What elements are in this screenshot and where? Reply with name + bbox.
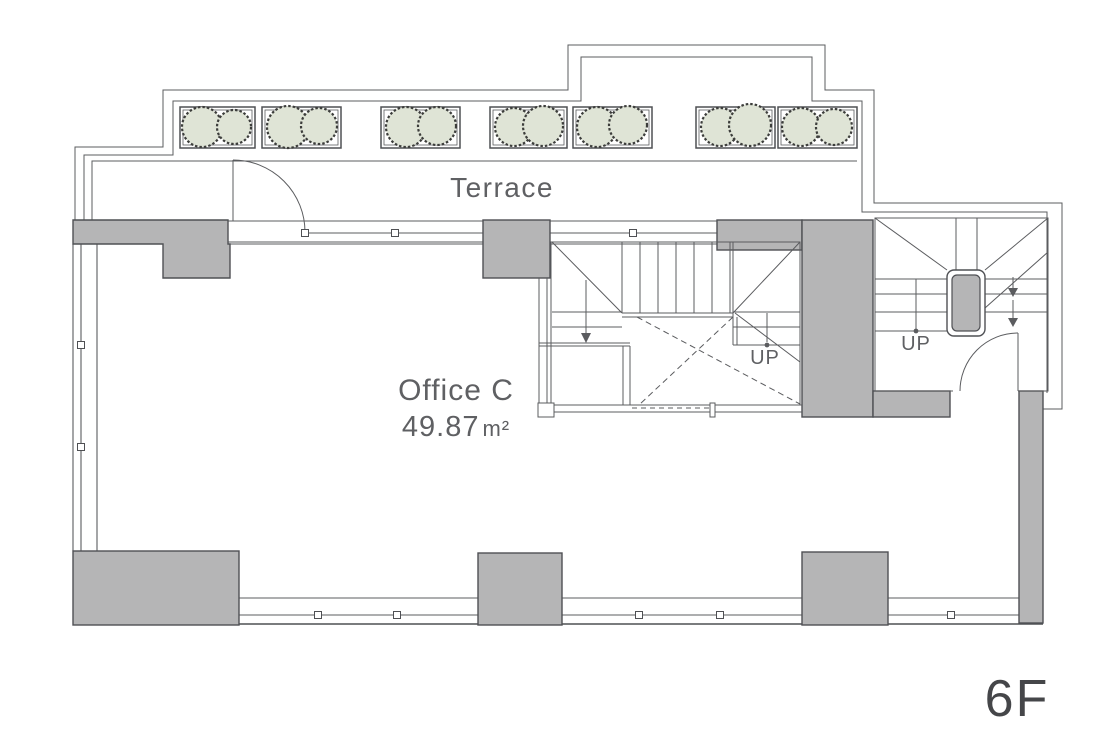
bush-icon xyxy=(782,108,820,146)
right-staircase xyxy=(875,218,1048,391)
terrace-label: Terrace xyxy=(450,172,554,203)
up-label-middle: UP xyxy=(750,347,780,369)
planter-box xyxy=(778,107,857,148)
planter-box xyxy=(381,107,460,148)
bush-icon xyxy=(301,108,337,144)
floor-label: 6F xyxy=(985,670,1050,728)
office-area-label: 49.87m² xyxy=(402,411,510,443)
planter-box xyxy=(490,106,567,148)
planter-box xyxy=(573,106,652,148)
wall-right xyxy=(1019,391,1043,623)
bush-icon xyxy=(729,104,771,146)
stair-door xyxy=(960,333,1018,391)
floor-plan-canvas: Terrace Office C 49.87m² UP UP 6F xyxy=(0,0,1110,748)
door-swing-arc xyxy=(960,333,1018,391)
wall-pillar-top-mid xyxy=(483,220,550,278)
wall-pillar-bottom-mid xyxy=(478,553,562,625)
bush-icon xyxy=(816,109,852,145)
bush-icon xyxy=(609,106,647,144)
up-label-right: UP xyxy=(901,333,931,355)
planter-box xyxy=(262,106,341,148)
bush-icon xyxy=(523,106,563,146)
exterior-walls xyxy=(73,220,1043,625)
planter-box xyxy=(180,107,255,148)
wall-stair-bottom-band xyxy=(873,391,950,417)
planter-box xyxy=(696,104,775,148)
office-label: Office C xyxy=(398,374,514,407)
bush-icon xyxy=(182,107,222,147)
wall-stair-divider xyxy=(802,220,873,417)
floor-plan: Terrace Office C 49.87m² UP UP 6F xyxy=(0,0,1110,748)
planter-row xyxy=(180,104,857,148)
bush-icon xyxy=(418,107,456,145)
bush-icon xyxy=(217,110,251,144)
wall-pillar-bottom-right xyxy=(802,552,888,625)
middle-staircase xyxy=(538,242,802,417)
wall-block-bottom-left xyxy=(73,551,239,625)
